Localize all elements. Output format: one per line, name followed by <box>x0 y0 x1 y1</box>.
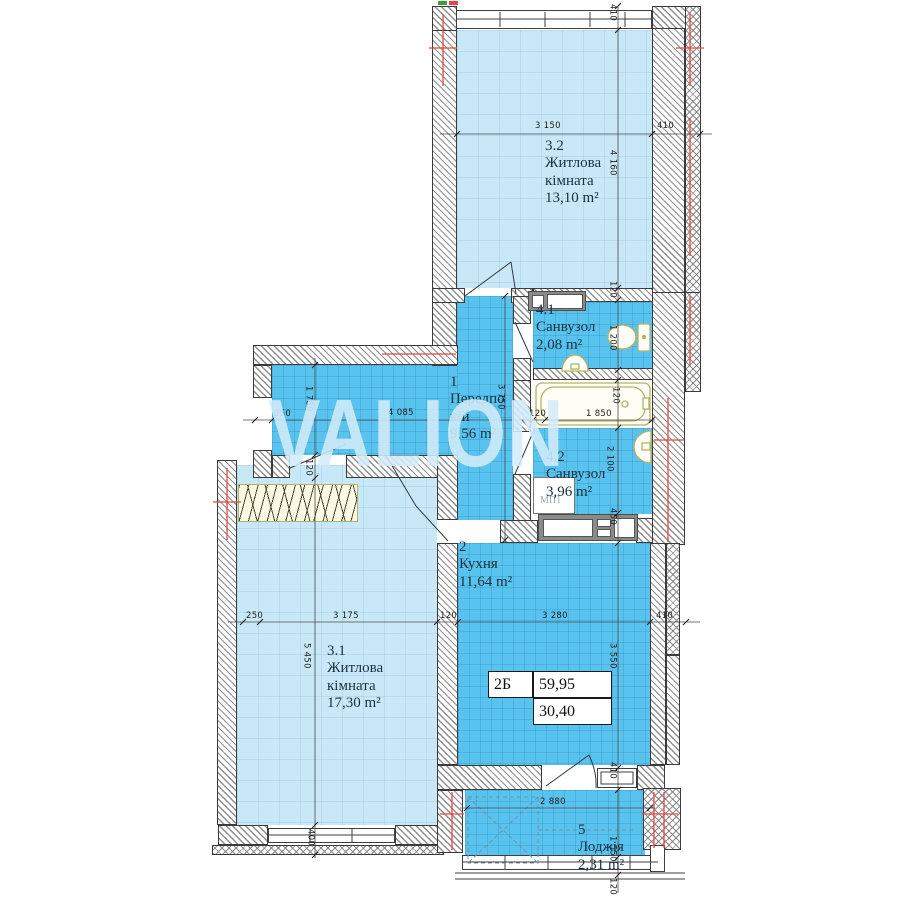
dim-label: 120 <box>608 281 617 298</box>
dim-label: 410 <box>656 612 673 621</box>
room-label-living1: 3.1 Житлова кімната 17,30 m² <box>327 643 383 713</box>
apartment-type: 2Б <box>488 671 533 698</box>
dim-label: 120 <box>611 387 620 404</box>
sink-icon <box>634 431 651 463</box>
room-label-bath1: 4.1 Санвузол 2,08 m² <box>536 302 595 354</box>
axis-marker-red <box>449 1 458 5</box>
dim-label: 4 085 <box>388 409 414 418</box>
window-mullions <box>268 12 685 879</box>
room-label-living2: 3.2 Житлова кімната 13,10 m² <box>545 138 601 208</box>
room-label-loggia: 5 Лоджія 2,31 m² <box>578 822 624 874</box>
total-area: 59,95 <box>533 671 612 698</box>
dim-label: 3 550 <box>608 643 617 669</box>
axis-marker-green <box>438 1 447 5</box>
dim-label: 400 <box>306 829 315 846</box>
dim-label: 410 <box>657 122 674 131</box>
dim-label: 3 280 <box>542 612 568 621</box>
plan-linework <box>0 0 900 900</box>
dim-label: 2 100 <box>605 446 614 472</box>
dim-label: 250 <box>274 410 291 419</box>
dim-label: 120 <box>304 459 313 476</box>
sink-icon <box>562 355 588 371</box>
dim-label: 4 160 <box>608 150 617 176</box>
room-label-hallway: 1 Передпо кій 9,56 m² <box>450 374 505 444</box>
dim-label: 1 780 <box>304 386 313 412</box>
room-label-kitchen: 2 Кухня 11,64 m² <box>459 539 512 591</box>
room-label-bath2: 4.2 Санвузол 3,96 m² <box>546 449 605 501</box>
dim-label: 3 175 <box>333 612 359 621</box>
dim-label: 120 <box>529 410 546 419</box>
dim-label: 5 450 <box>302 643 311 669</box>
dim-label: 450 <box>608 508 617 525</box>
floor-plan: МП1 <box>0 0 900 900</box>
dim-label: 120 <box>440 612 457 621</box>
dim-label: 120 <box>608 878 617 895</box>
dim-label: 1 850 <box>586 410 612 419</box>
dim-label: 2 880 <box>540 798 566 807</box>
living-area: 30,40 <box>533 698 612 725</box>
dim-label: 410 <box>608 762 617 779</box>
dim-label: 1 200 <box>608 325 617 351</box>
dim-label: 410 <box>608 4 617 21</box>
dim-label: 3 150 <box>535 122 561 131</box>
dim-label: 250 <box>246 612 263 621</box>
